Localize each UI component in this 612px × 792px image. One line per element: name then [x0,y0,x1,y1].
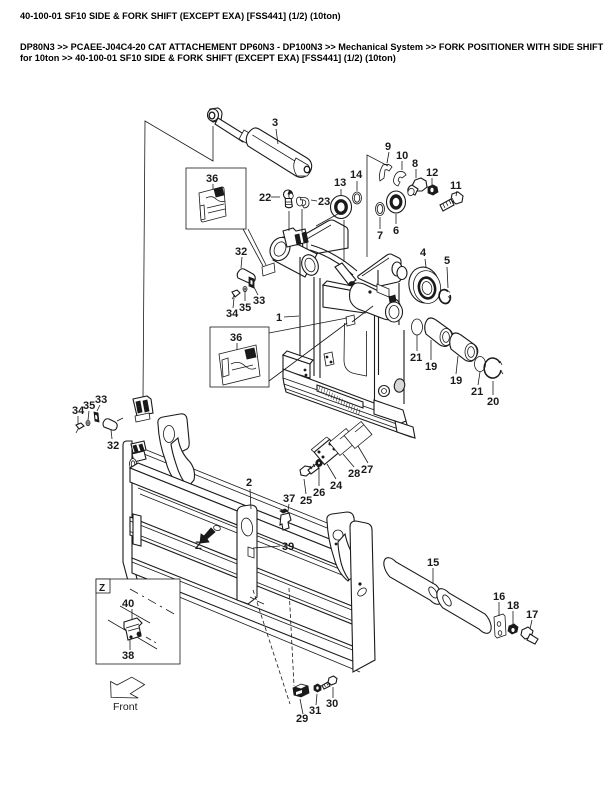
svg-text:2: 2 [246,477,252,489]
svg-text:23: 23 [318,196,330,208]
svg-text:18: 18 [507,600,519,612]
svg-text:8: 8 [412,158,418,170]
svg-text:9: 9 [385,141,391,153]
svg-text:39: 39 [282,541,294,553]
svg-text:11: 11 [450,180,462,192]
svg-text:16: 16 [493,591,505,603]
svg-text:22: 22 [259,192,271,204]
svg-text:35: 35 [239,302,251,314]
svg-text:31: 31 [309,705,321,717]
svg-text:29: 29 [296,713,308,725]
svg-text:5: 5 [444,255,450,267]
svg-text:32: 32 [235,246,247,258]
svg-text:14: 14 [350,169,363,181]
svg-text:36: 36 [206,173,218,185]
svg-text:30: 30 [326,698,338,710]
svg-text:3: 3 [272,117,278,129]
svg-text:6: 6 [393,225,399,237]
svg-text:25: 25 [300,495,312,507]
svg-text:24: 24 [330,480,343,492]
svg-text:21: 21 [471,386,483,398]
svg-text:28: 28 [348,468,360,480]
svg-text:4: 4 [420,247,427,259]
svg-text:1: 1 [276,312,282,324]
svg-text:33: 33 [253,295,265,307]
svg-text:17: 17 [526,609,538,621]
svg-text:27: 27 [361,464,373,476]
svg-text:20: 20 [487,396,499,408]
svg-text:36: 36 [230,332,242,344]
svg-text:34: 34 [226,308,239,320]
svg-text:10: 10 [396,150,408,162]
svg-text:40: 40 [122,598,134,610]
svg-text:26: 26 [313,487,325,499]
svg-text:35: 35 [83,400,95,412]
svg-text:Front: Front [113,701,138,713]
svg-text:Z: Z [99,583,105,594]
svg-text:19: 19 [450,375,462,387]
svg-text:32: 32 [107,440,119,452]
svg-text:13: 13 [334,177,346,189]
svg-text:15: 15 [427,557,439,569]
svg-text:12: 12 [426,167,438,179]
svg-text:38: 38 [122,650,134,662]
svg-text:7: 7 [377,230,383,242]
svg-text:19: 19 [425,361,437,373]
svg-text:33: 33 [95,394,107,406]
svg-text:21: 21 [410,352,422,364]
svg-text:34: 34 [72,405,85,417]
svg-text:Z: Z [195,540,202,552]
svg-text:37: 37 [283,493,295,505]
